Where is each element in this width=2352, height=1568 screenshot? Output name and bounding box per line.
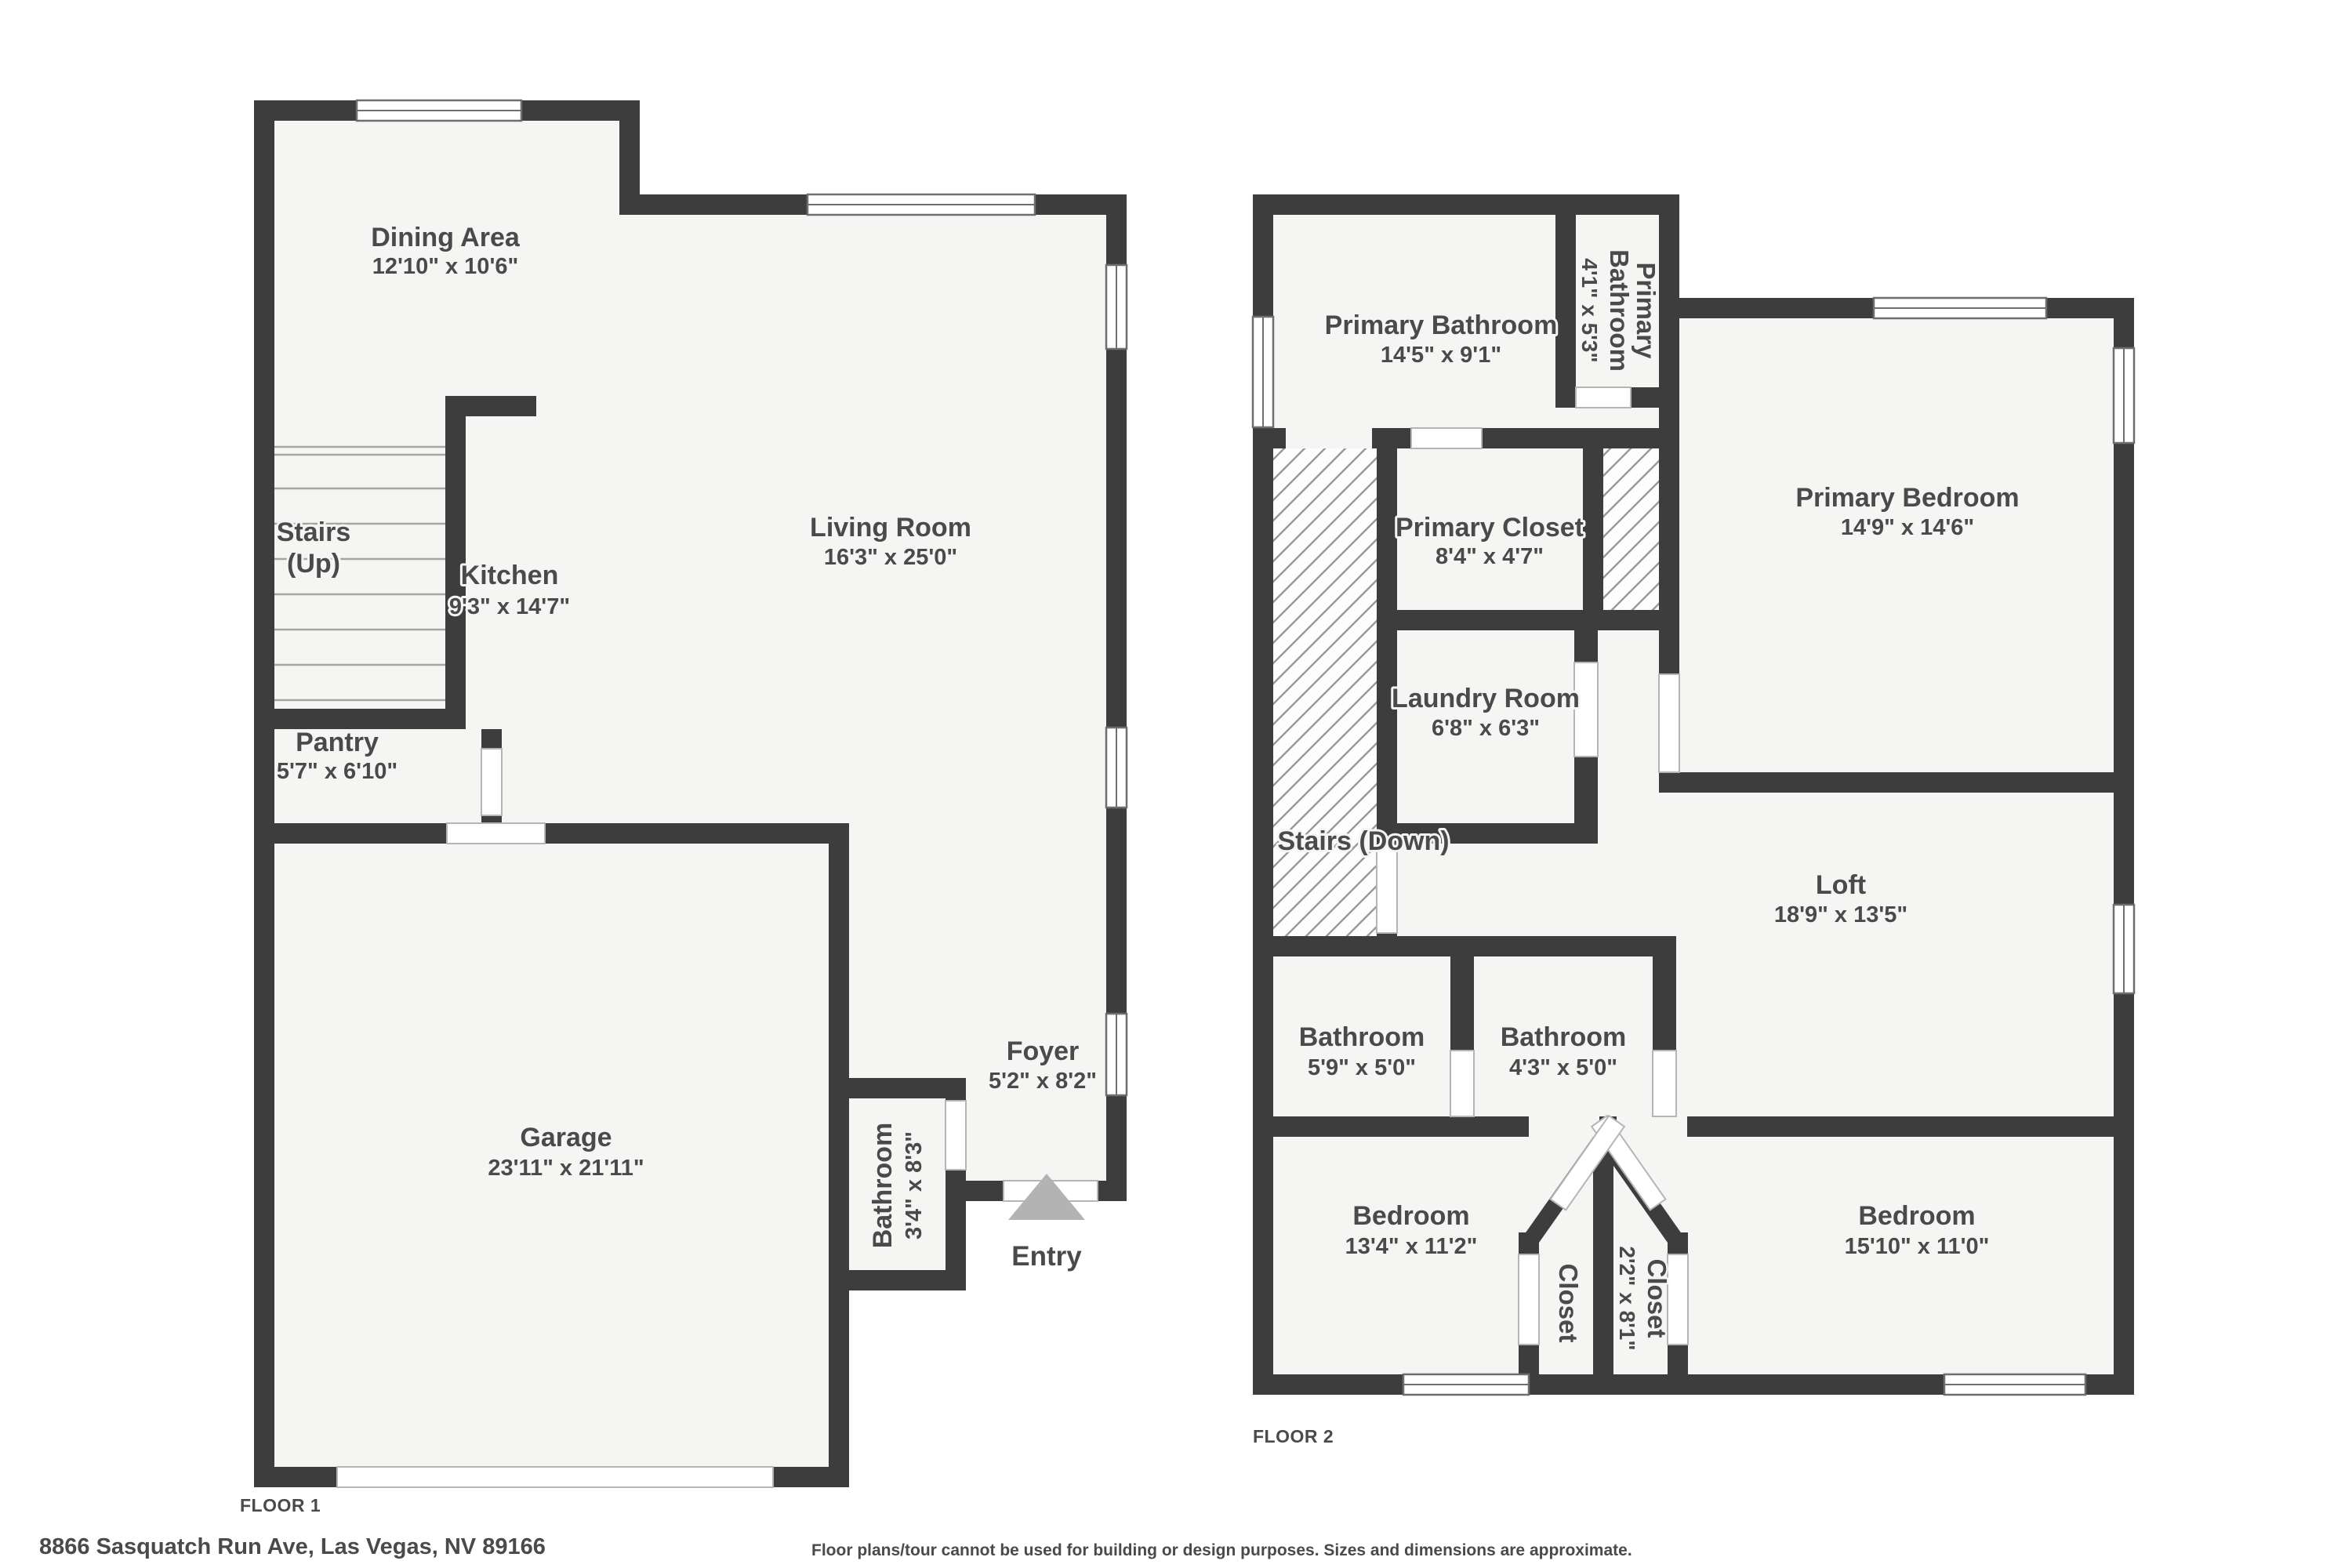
room-label-bedroom-right: Bedroom 15'10" x 11'0" — [1845, 1201, 1990, 1259]
primary-bedroom-door — [1659, 674, 1679, 772]
room-name: Stairs — [277, 517, 351, 547]
stairs-down-hatch — [1273, 448, 1377, 936]
room-name: Bedroom — [1352, 1201, 1469, 1231]
room-name: Laundry Room — [1392, 684, 1580, 713]
room-name: Closet — [1642, 1259, 1671, 1338]
closet-left-door — [1519, 1254, 1539, 1345]
window — [1106, 1014, 1127, 1095]
room-dims: 14'5" x 9'1" — [1381, 343, 1501, 368]
room-name: Bathroom — [1605, 249, 1634, 372]
room-name: Foyer — [1007, 1036, 1080, 1066]
room-dims: 9'3" x 14'7" — [449, 594, 570, 619]
window — [808, 194, 1035, 215]
room-label-bathroom-right: Bathroom 4'3" x 5'0" — [1501, 1022, 1627, 1080]
room-label-living: Living Room 16'3" x 25'0" — [810, 513, 971, 570]
room-name: Dining Area — [371, 223, 521, 252]
entry-label: Entry — [1011, 1241, 1082, 1272]
disclaimer-text: Floor plans/tour cannot be used for buil… — [811, 1541, 1632, 1559]
room-dims: 15'10" x 11'0" — [1845, 1234, 1990, 1259]
room-name: Bedroom — [1858, 1201, 1975, 1231]
floorplan-canvas: Dining Area 12'10" x 10'6" Stairs (Up) K… — [0, 0, 2352, 1568]
room-label-dining: Dining Area 12'10" x 10'6" — [371, 223, 521, 279]
room-name: Bathroom — [1299, 1022, 1425, 1052]
room-name: Primary Closet — [1396, 513, 1584, 543]
room-name: Loft — [1816, 870, 1866, 900]
room-dims: 23'11" x 21'11" — [488, 1156, 644, 1181]
room-dims: 8'4" x 4'7" — [1436, 544, 1544, 569]
room-dims: 12'10" x 10'6" — [372, 254, 518, 279]
room-dims: 18'9" x 13'5" — [1774, 902, 1907, 927]
room-name: Living Room — [810, 513, 971, 543]
floor2-plan: Primary Bathroom 14'5" x 9'1" Primary Ba… — [1253, 194, 2134, 1446]
floor1-plan: Dining Area 12'10" x 10'6" Stairs (Up) K… — [240, 100, 1127, 1515]
stairs-hall-door — [1377, 847, 1397, 933]
bathroom-left-door — [1450, 1051, 1474, 1116]
room-name: Closet — [1554, 1264, 1583, 1343]
room-dims: 13'4" x 11'2" — [1345, 1234, 1478, 1259]
room-dims: 2'2" x 8'1" — [1615, 1246, 1639, 1350]
bathroom-right-door — [1653, 1051, 1676, 1116]
room-name: Kitchen — [461, 561, 559, 590]
room-dims: 5'9" x 5'0" — [1308, 1055, 1416, 1080]
room-name: Pantry — [296, 728, 379, 757]
address-text: 8866 Sasquatch Run Ave, Las Vegas, NV 89… — [39, 1534, 546, 1559]
room-label-closet-left: Closet — [1554, 1264, 1583, 1343]
room-dims: 14'9" x 14'6" — [1841, 515, 1974, 540]
pantry-door — [481, 749, 502, 815]
room-dims: 4'1" x 5'3" — [1577, 258, 1602, 362]
window — [1106, 265, 1127, 349]
room-label-closet-right: Closet 2'2" x 8'1" — [1615, 1246, 1671, 1350]
floor1-tag: FLOOR 1 — [240, 1495, 321, 1515]
garage-door — [337, 1467, 773, 1487]
room-label-bedroom-left: Bedroom 13'4" x 11'2" — [1345, 1201, 1478, 1259]
room-dims: 3'4" x 8'3" — [902, 1131, 927, 1240]
room-label-bathroom-left: Bathroom 5'9" x 5'0" — [1299, 1022, 1425, 1080]
window — [1403, 1374, 1529, 1395]
room-dims: 4'3" x 5'0" — [1509, 1055, 1617, 1080]
floor1-floor — [254, 100, 1127, 1487]
footer: 8866 Sasquatch Run Ave, Las Vegas, NV 89… — [39, 1534, 1632, 1559]
room-name: Primary Bathroom — [1325, 310, 1558, 340]
room-name: Bathroom — [1501, 1022, 1627, 1052]
room-label-bathroom-f1: Bathroom 3'4" x 8'3" — [868, 1123, 927, 1249]
chase-hatch — [1603, 448, 1659, 610]
room-dims: 5'2" x 8'2" — [989, 1069, 1097, 1094]
room-dims: 5'7" x 6'10" — [277, 759, 397, 784]
room-label-stairs-down: Stairs (Down) — [1277, 826, 1449, 856]
window — [2114, 905, 2134, 993]
window — [1106, 728, 1127, 808]
window — [1874, 298, 2046, 318]
room-name: Primary Bedroom — [1795, 483, 2019, 513]
room-label-kitchen: Kitchen 9'3" x 14'7" — [449, 561, 570, 619]
window — [2114, 348, 2134, 443]
room-dims: 16'3" x 25'0" — [824, 545, 957, 570]
bathroom-door — [946, 1101, 966, 1170]
room-dims: 6'8" x 6'3" — [1432, 716, 1540, 741]
garage-interior-door — [447, 823, 545, 844]
room-name: Primary — [1632, 263, 1661, 360]
room-name: Bathroom — [868, 1123, 898, 1249]
window — [357, 100, 521, 121]
room-name: Garage — [520, 1123, 612, 1152]
primary-bathroom-small-door — [1576, 387, 1631, 408]
primary-closet-door — [1411, 428, 1482, 448]
window — [1253, 317, 1273, 427]
floor2-tag: FLOOR 2 — [1253, 1426, 1334, 1446]
room-label-primary-bathroom-small: Primary Bathroom 4'1" x 5'3" — [1577, 249, 1661, 372]
window — [1944, 1374, 2085, 1395]
room-name: (Up) — [287, 549, 340, 579]
